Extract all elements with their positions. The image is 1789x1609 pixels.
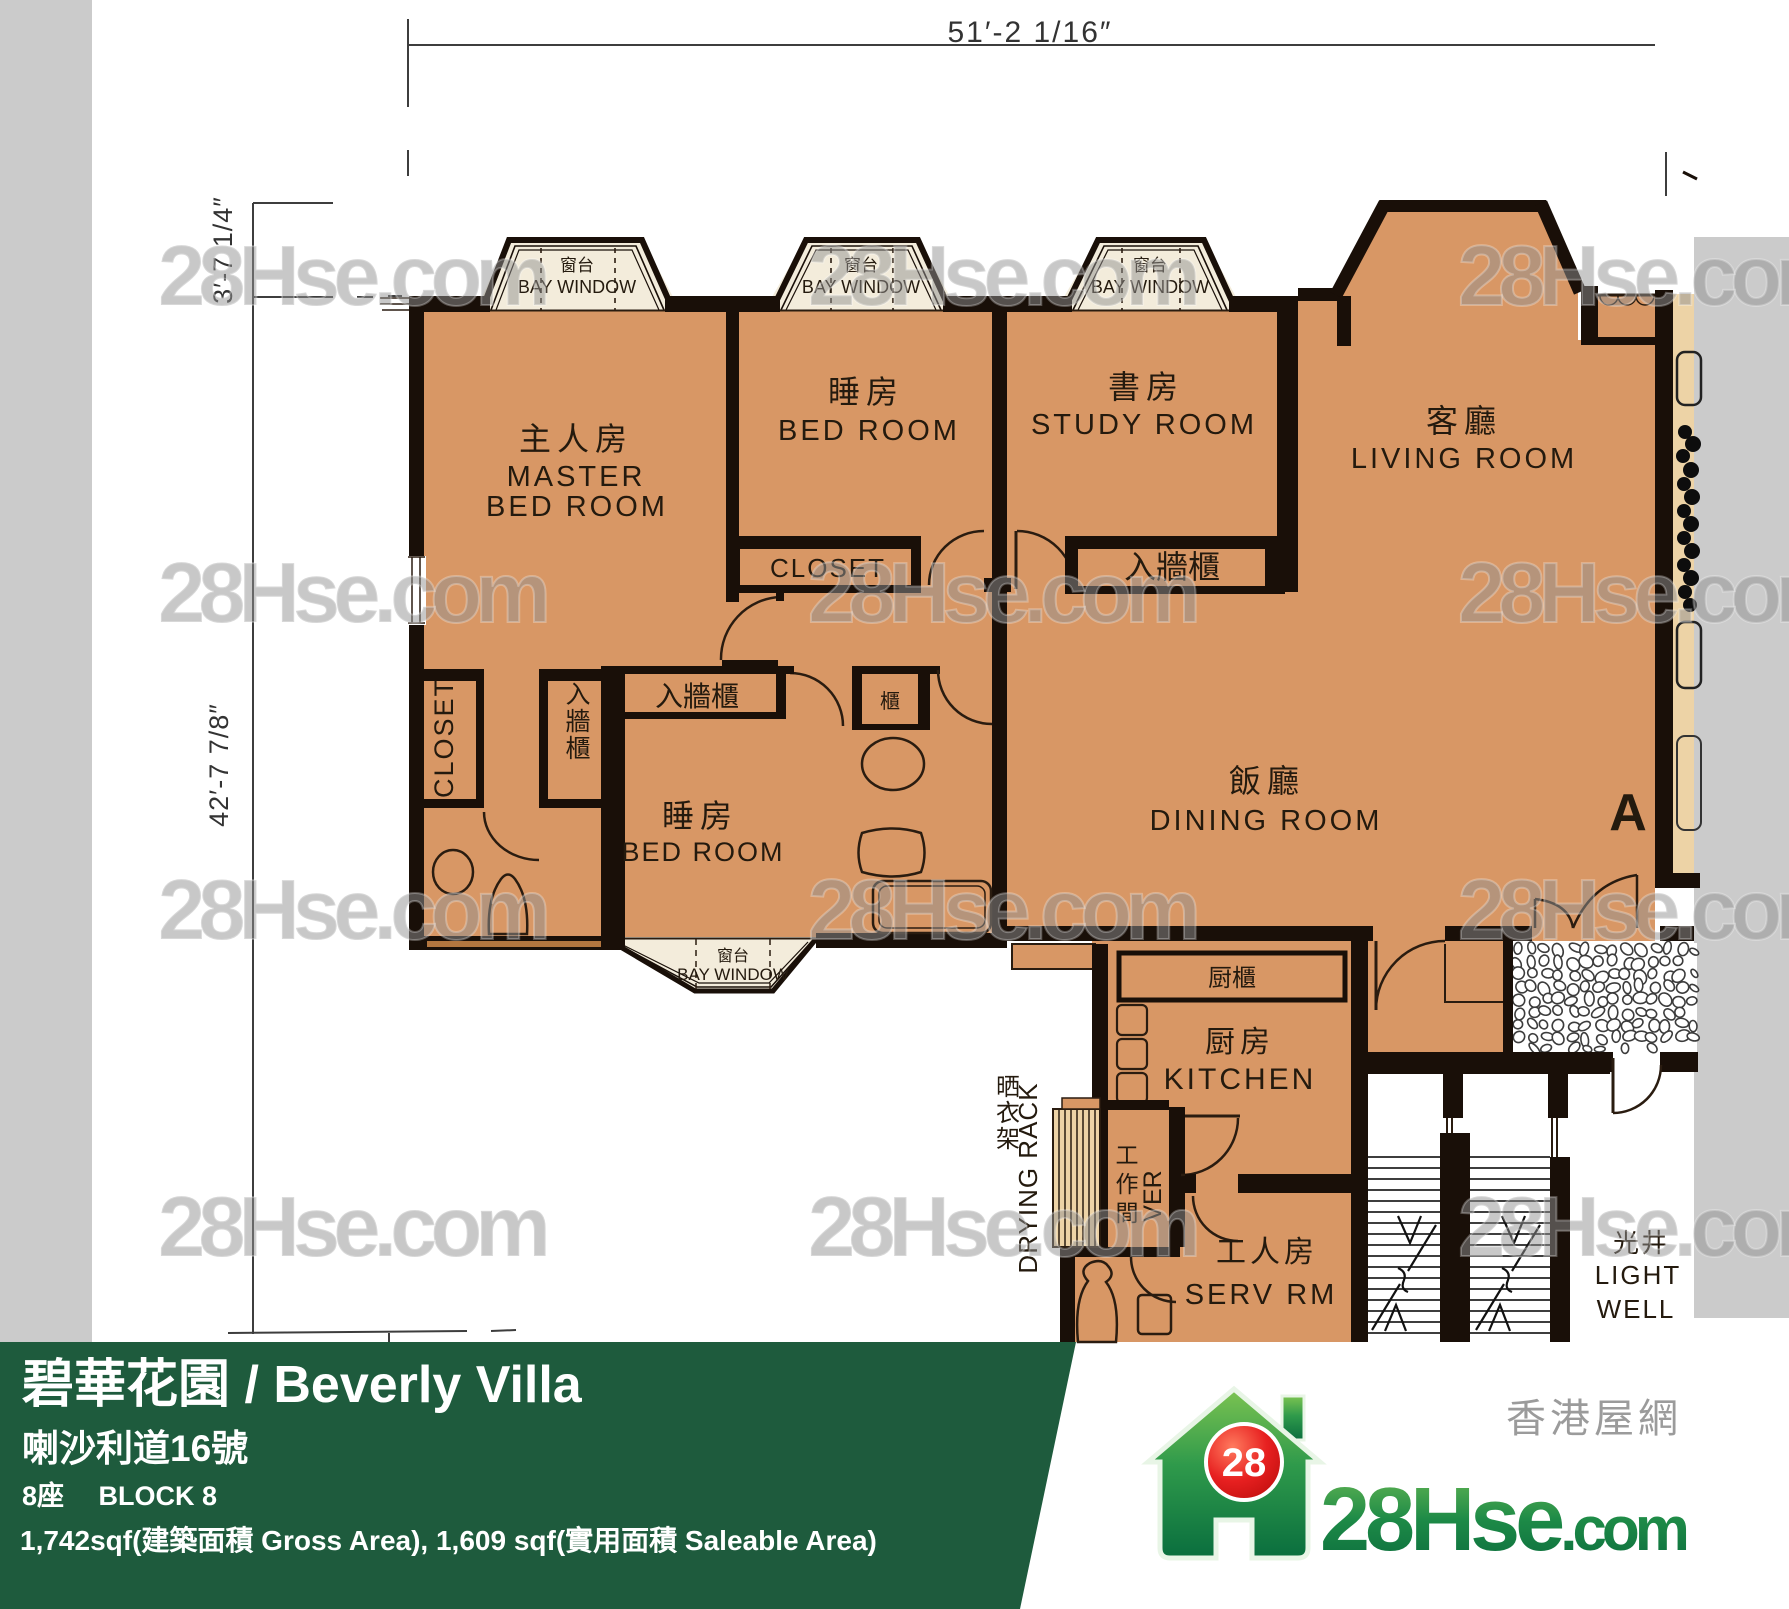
svg-text:窗台: 窗台 [717,947,749,965]
svg-text:STUDY ROOM: STUDY ROOM [1031,409,1257,441]
svg-text:厨櫃: 厨櫃 [1208,965,1256,992]
svg-text:厨房: 厨房 [1205,1026,1275,1059]
svg-text:1,742sqf(建築面積 Gross Area), 1,6: 1,742sqf(建築面積 Gross Area), 1,609 sqf(實用面… [20,1524,877,1556]
svg-text:28Hse.com: 28Hse.com [1458,863,1789,958]
svg-text:BED ROOM: BED ROOM [486,491,668,523]
svg-text:MASTER: MASTER [507,461,646,493]
svg-text:42′-7 7/8″: 42′-7 7/8″ [204,703,234,827]
svg-text:窗台: 窗台 [560,256,594,275]
svg-text:28Hse.com: 28Hse.com [1458,1180,1789,1275]
svg-text:BED ROOM: BED ROOM [778,415,960,447]
svg-text:睡房: 睡房 [662,798,738,834]
svg-text:入牆櫃: 入牆櫃 [565,681,590,763]
svg-text:碧華花園 / Beverly Villa: 碧華花園 / Beverly Villa [22,1356,583,1414]
svg-text:WELL: WELL [1597,1294,1676,1324]
svg-text:主人房: 主人房 [519,421,633,457]
svg-text:51′-2 1/16″: 51′-2 1/16″ [947,16,1112,49]
svg-text:BED ROOM: BED ROOM [621,837,784,867]
svg-text:KITCHEN: KITCHEN [1164,1063,1317,1096]
svg-text:書房: 書房 [1108,369,1184,405]
svg-text:28Hse.com: 28Hse.com [158,863,546,958]
svg-text:工人房: 工人房 [1216,1236,1318,1269]
svg-text:香港屋網: 香港屋網 [1506,1397,1682,1441]
svg-text:LIVING ROOM: LIVING ROOM [1351,443,1577,475]
svg-text:28Hse.com: 28Hse.com [1458,546,1789,641]
svg-text:SERV RM: SERV RM [1185,1279,1338,1311]
svg-text:飯廳: 飯廳 [1229,763,1305,799]
svg-text:櫃: 櫃 [880,690,900,713]
svg-text:睡房: 睡房 [828,374,904,410]
svg-text:入牆櫃: 入牆櫃 [655,681,739,712]
svg-text:8座 BLOCK 8: 8座 BLOCK 8 [22,1480,217,1511]
svg-text:28Hse.com: 28Hse.com [1458,229,1789,324]
svg-text:CLOSET: CLOSET [429,678,459,798]
svg-text:28Hse.com: 28Hse.com [808,863,1196,958]
svg-text:客廳: 客廳 [1426,403,1502,439]
svg-text:28Hse.com: 28Hse.com [808,546,1196,641]
svg-text:28Hse.com: 28Hse.com [158,1180,546,1275]
svg-text:28Hse.com: 28Hse.com [808,1180,1196,1275]
svg-text:28: 28 [1222,1441,1267,1485]
svg-text:28Hse.com: 28Hse.com [808,229,1196,324]
svg-text:A: A [1609,784,1647,842]
svg-text:DINING ROOM: DINING ROOM [1150,805,1383,837]
svg-text:28Hse.com: 28Hse.com [158,229,546,324]
svg-text:喇沙利道16號: 喇沙利道16號 [22,1428,248,1469]
svg-text:28Hse.com: 28Hse.com [158,546,546,641]
svg-text:BAY WINDOW: BAY WINDOW [677,965,789,984]
